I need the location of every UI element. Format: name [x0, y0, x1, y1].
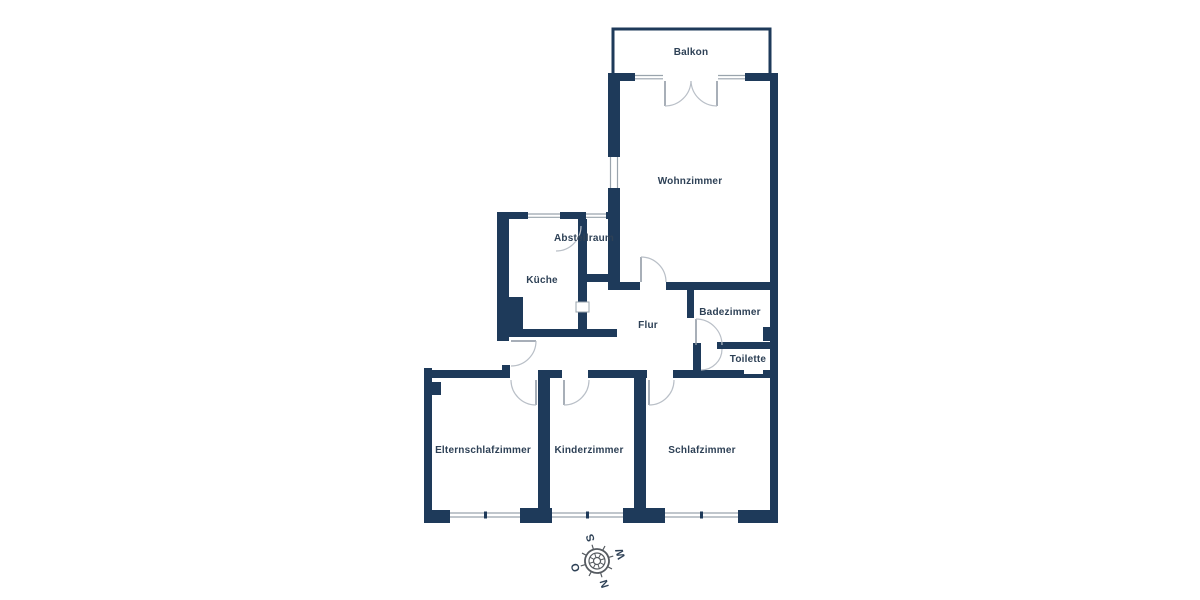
- window: [635, 76, 663, 79]
- compass-letter-north: N: [598, 578, 612, 589]
- mullion-tick: [484, 512, 487, 519]
- door-arc-toilette: [701, 349, 722, 370]
- wall-segment: [763, 327, 770, 341]
- room-label-flur: Flur: [638, 320, 658, 331]
- toilet-wall-niche: [744, 370, 763, 374]
- wall-segment: [560, 212, 586, 219]
- wall-segment: [666, 282, 770, 290]
- room-label-kueche: Küche: [526, 275, 558, 286]
- window: [718, 76, 745, 79]
- door-arc-badezimmer: [696, 319, 722, 345]
- door-arc-elternschlafzimmer: [511, 380, 536, 405]
- wall-segment: [606, 212, 620, 219]
- door-arc-entrance: [511, 341, 536, 366]
- door-arc-kinderzimmer: [564, 380, 589, 405]
- room-label-abstellraum: Abstellraum: [554, 233, 614, 244]
- wall-segment: [608, 73, 620, 157]
- chimney-block: [509, 297, 523, 333]
- wall-segment: [770, 73, 778, 523]
- kitchen-pass-through: [576, 302, 589, 312]
- wall-segment: [497, 329, 617, 337]
- room-label-schlafzimmer: Schlafzimmer: [668, 445, 735, 456]
- wall-segment: [587, 274, 620, 282]
- room-label-wohnzimmer: Wohnzimmer: [658, 176, 723, 187]
- wall-segment: [588, 370, 647, 378]
- wall-segment: [623, 508, 665, 523]
- window: [586, 214, 606, 217]
- room-label-balkon: Balkon: [674, 47, 709, 58]
- door-arc-schlafzimmer: [649, 380, 674, 405]
- room-labels: Balkon Wohnzimmer Abstellraum Küche Flur…: [435, 47, 766, 456]
- window: [611, 157, 618, 188]
- door-arc-wohnzimmer: [641, 257, 666, 282]
- compass-letter-south: S: [584, 532, 598, 543]
- wall-segment: [432, 382, 441, 395]
- room-label-toilette: Toilette: [730, 354, 767, 365]
- mullion-tick: [586, 512, 589, 519]
- door-arc-balcony-left: [665, 81, 691, 106]
- mullion-tick: [700, 512, 703, 519]
- compass-graphic: [576, 540, 618, 582]
- wall-segment: [424, 368, 432, 523]
- compass-rose: O S W N: [562, 525, 635, 595]
- floorplan-canvas: Balkon Wohnzimmer Abstellraum Küche Flur…: [0, 0, 1200, 600]
- wall-segment: [520, 508, 552, 523]
- wall-segment: [608, 282, 640, 290]
- wall-segment: [738, 510, 778, 523]
- door-arc-balcony-right: [691, 81, 717, 106]
- room-label-badezimmer: Badezimmer: [699, 307, 760, 318]
- wall-segment: [538, 370, 562, 378]
- window: [528, 214, 560, 217]
- wall-segment: [538, 378, 550, 515]
- room-label-elternschlafzimmer: Elternschlafzimmer: [435, 445, 531, 456]
- compass-letter-east: O: [569, 561, 583, 573]
- wall-segment: [424, 370, 510, 378]
- wall-segment: [634, 378, 646, 515]
- room-label-kinderzimmer: Kinderzimmer: [554, 445, 623, 456]
- wall-segment: [717, 342, 770, 349]
- compass-letter-west: W: [613, 546, 628, 560]
- wall-segment: [497, 212, 509, 341]
- floorplan-page: Balkon Wohnzimmer Abstellraum Küche Flur…: [0, 0, 1200, 600]
- wall-segment: [424, 510, 450, 523]
- wall-segment: [687, 290, 694, 318]
